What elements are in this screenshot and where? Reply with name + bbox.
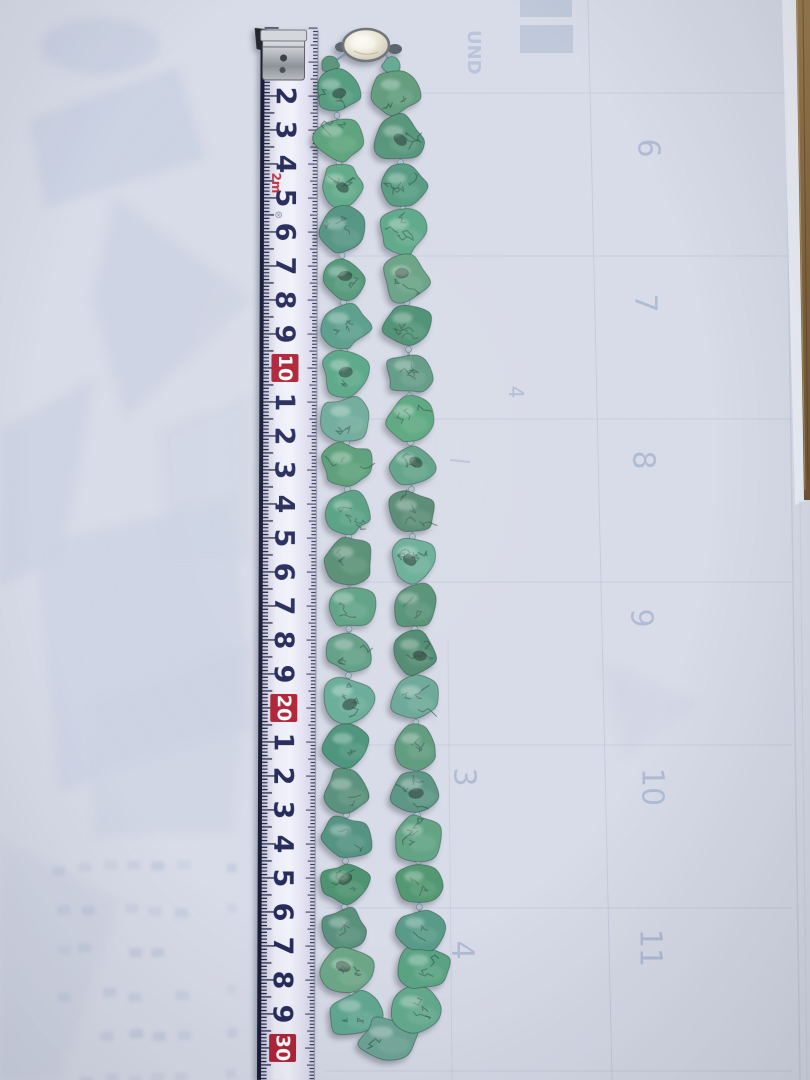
svg-text:UND: UND — [463, 30, 484, 75]
tape-number: 6 — [267, 903, 298, 922]
tape-number: 2 — [269, 427, 300, 446]
tape-measure: 234567891012345678920123456789302m⊛ — [251, 28, 319, 1080]
tape-number: 9 — [269, 325, 300, 344]
svg-text:9: 9 — [624, 608, 659, 627]
tape-number: 4 — [268, 495, 299, 514]
tape-number: 2 — [270, 87, 301, 106]
tape-number: 1 — [269, 393, 300, 412]
bead — [396, 865, 443, 903]
svg-text:7: 7 — [628, 293, 663, 312]
tape-number: 5 — [268, 529, 299, 548]
tape-stamp: ⊛ — [272, 211, 283, 219]
tape-number: 7 — [269, 257, 300, 276]
tape-number: 1 — [268, 733, 299, 752]
svg-text:11: 11 — [633, 929, 668, 967]
tape-number: 3 — [270, 121, 301, 140]
tape-number: 7 — [267, 937, 298, 956]
tape-end-clip — [254, 28, 306, 80]
tape-number: 6 — [269, 223, 300, 242]
tape-number: 8 — [269, 291, 300, 310]
tape-number: 5 — [267, 869, 298, 888]
tape-numbers: 23456789101234567892012345678930 — [267, 87, 301, 1063]
svg-text:3: 3 — [447, 767, 482, 786]
scene-canvas: 67891011344NDUND234567891012345678920123… — [0, 0, 810, 1080]
photo-turquoise-necklace-measurement: 67891011344NDUND234567891012345678920123… — [0, 0, 810, 1080]
bead — [321, 396, 369, 441]
tape-number-red: 30 — [272, 1035, 294, 1062]
svg-text:4: 4 — [504, 386, 528, 399]
svg-text:10: 10 — [635, 768, 670, 806]
tape-number: 9 — [267, 1005, 298, 1024]
svg-text:6: 6 — [631, 138, 666, 157]
tape-number-red: 10 — [274, 355, 296, 382]
tape-number: 8 — [268, 631, 299, 650]
tape-number: 8 — [267, 971, 298, 990]
tape-unit-marker: 2m — [269, 172, 283, 193]
tape-number: 3 — [267, 801, 298, 820]
ghost-block — [520, 0, 572, 17]
tape-number: 7 — [268, 597, 299, 616]
tape-number: 4 — [267, 835, 298, 854]
svg-text:8: 8 — [626, 450, 661, 469]
bead — [329, 588, 376, 627]
tape-number: 9 — [268, 665, 299, 684]
tape-number: 6 — [268, 563, 299, 582]
tape-number: 3 — [269, 461, 300, 480]
svg-text:4: 4 — [445, 940, 480, 959]
ghost-block — [520, 25, 573, 53]
bead — [387, 355, 434, 392]
tape-number: 4 — [270, 155, 301, 174]
tape-number-red: 20 — [273, 695, 295, 722]
bead — [396, 815, 442, 862]
tape-number: 2 — [268, 767, 299, 786]
